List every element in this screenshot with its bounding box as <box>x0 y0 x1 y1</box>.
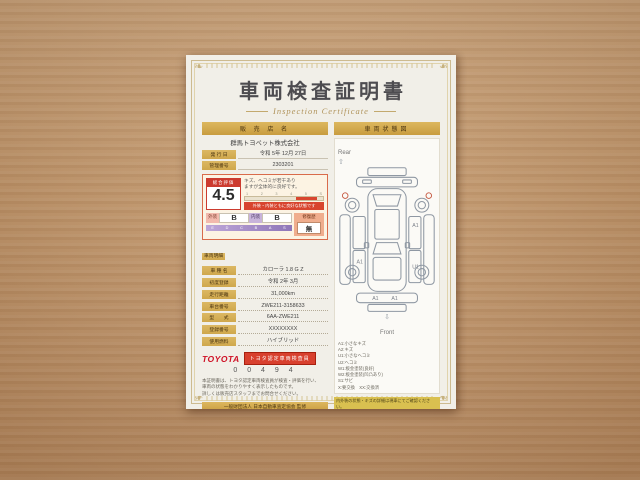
detail-row-registration-number: 登録番号 XXXXXXXX <box>202 325 328 334</box>
grade-scale-letter: D <box>226 226 230 230</box>
score-scale-marker <box>296 197 316 200</box>
inspector-row: TOYOTA トヨタ認定車両検査員 <box>202 352 328 365</box>
condition-legend: A1:小さなキズ A2:キズ U1:小さなヘコミ U2:ヘコミ W1:板金塗装(… <box>338 341 436 391</box>
front-label-row: ⇩ Front <box>338 314 436 339</box>
front-label: Front <box>380 330 394 336</box>
condition-mark: A1 <box>372 296 378 302</box>
first-registration-label: 初度登録 <box>202 278 236 287</box>
grade-scale-letter: E <box>211 226 215 230</box>
detail-row-first-registration: 初度登録 令和 2年 3月 <box>202 277 328 287</box>
issue-date-row: 発 行 日 令和 5年 12月 27日 <box>202 149 328 159</box>
grade-scale-letter: S <box>283 226 287 230</box>
issue-date-value: 令和 5年 12月 27日 <box>238 149 328 159</box>
car-condition-diagram: A1 A1 U1 A1 A1 <box>338 166 436 314</box>
control-number-label: 管理番号 <box>202 161 236 170</box>
control-number-value: 2303201 <box>238 162 328 170</box>
detail-row-fuel: 使用燃料 ハイブリッド <box>202 336 328 346</box>
rear-arrow-icon: ⇧ <box>338 159 436 166</box>
supervision-bar: 一般財団法人 日本自動車査定協会 監修 <box>202 402 328 409</box>
rear-label: Rear <box>338 150 351 156</box>
photo-of-certificate: { "title": { "main": "車両検査証明書", "sub": "… <box>0 0 640 480</box>
grade-scale-letter: A <box>269 226 273 230</box>
toyota-logo: TOYOTA <box>202 354 240 364</box>
overall-score-label: 総合評価 <box>207 179 240 187</box>
certificate-columns: 販 売 店 名 群馬トヨペット株式会社 発 行 日 令和 5年 12月 27日 … <box>202 122 440 409</box>
condition-mark: U1 <box>412 265 419 271</box>
overall-score-value: 4.5 <box>207 187 240 205</box>
score-scale-caption: 外装・内装ともに良好な状態です <box>244 202 324 210</box>
detail-row-model: 車 種 名 カローラ 1.8 G Z <box>202 265 328 275</box>
left-column: 販 売 店 名 群馬トヨペット株式会社 発 行 日 令和 5年 12月 27日 … <box>202 122 328 409</box>
model-label: 車 種 名 <box>202 266 236 275</box>
detail-row-mileage: 走行距離 31,000km <box>202 290 328 299</box>
score-scale-bar <box>244 196 324 201</box>
chassis-number-label: 車台番号 <box>202 302 236 311</box>
right-column: 車両状態図 Rear ⇧ <box>334 122 440 409</box>
grade-scale-letter: B <box>255 226 259 230</box>
grade-scale-letter: C <box>240 226 244 230</box>
certificate-subtitle: Inspection Certificate <box>202 106 440 116</box>
issue-date-label: 発 行 日 <box>202 150 236 159</box>
fuel-value: ハイブリッド <box>238 336 328 346</box>
registration-number-value: XXXXXXXX <box>238 326 328 334</box>
details-section-row: 車両明細 <box>202 244 328 262</box>
evaluation-comment-line2: ますが全体的に良好です。 <box>244 184 324 190</box>
first-registration-value: 令和 2年 3月 <box>238 277 328 287</box>
condition-diagram-panel: Rear ⇧ <box>334 138 440 394</box>
certificate-title: 車両検査証明書 <box>202 75 440 104</box>
front-arrow-icon: ⇩ <box>338 314 436 321</box>
exterior-grade-value: B <box>219 213 249 223</box>
model-code-label: 型 式 <box>202 313 236 322</box>
condition-mark: A1 <box>357 260 363 266</box>
condition-mark: A1 <box>412 223 418 229</box>
grade-scale-bar: E D C B A S <box>206 225 292 231</box>
seller-header-bar: 販 売 店 名 <box>202 122 328 135</box>
chassis-number-value: ZWE211-3158633 <box>238 303 328 311</box>
condition-diagram-header-bar: 車両状態図 <box>334 122 440 135</box>
subtitle-rule-left <box>246 111 268 112</box>
evaluation-top: 総合評価 4.5 キズ、ヘコミが若干あり ますが全体的に良好です。 1 2 3 … <box>206 178 324 210</box>
inspector-notes: 本証明書は、トヨタ認定車両検査員が検査・評価を行い、 車両の状態をわかりやすく表… <box>202 378 328 396</box>
evaluation-box: 総合評価 4.5 キズ、ヘコミが若干あり ますが全体的に良好です。 1 2 3 … <box>202 174 328 240</box>
dealer-name: 群馬トヨペット株式会社 <box>202 138 328 147</box>
condition-highlight-note: 内外装の状態・キズの詳細は現車にてご確認ください。 <box>334 397 440 409</box>
evaluation-comment-area: キズ、ヘコミが若干あり ますが全体的に良好です。 1 2 3 4 5 S <box>244 178 324 210</box>
subtitle-rule-right <box>374 111 396 112</box>
interior-grade-label: 内装 <box>249 213 262 223</box>
repair-history-label: 修復歴 <box>294 213 324 221</box>
grade-section: 外装 B 内装 B E D C B A S <box>206 213 324 236</box>
certificate-paper: ❧ ❧ ❧ ❧ 車両検査証明書 Inspection Certificate 販… <box>186 55 456 409</box>
mileage-label: 走行距離 <box>202 290 236 299</box>
details-section-label: 車両明細 <box>202 253 225 260</box>
repair-history-block: 修復歴 無 <box>294 213 324 236</box>
model-code-value: 6AA-ZWE211 <box>238 314 328 322</box>
interior-grade-value: B <box>262 213 292 223</box>
detail-row-model-code: 型 式 6AA-ZWE211 <box>202 313 328 322</box>
registration-number-label: 登録番号 <box>202 325 236 334</box>
certificate-content: 車両検査証明書 Inspection Certificate 販 売 店 名 群… <box>193 62 449 402</box>
inspector-number: 0 0 4 9 4 <box>202 367 328 374</box>
grade-row: 外装 B 内装 B <box>206 213 292 223</box>
overall-score-box: 総合評価 4.5 <box>206 178 241 210</box>
fuel-label: 使用燃料 <box>202 337 236 346</box>
condition-mark: A1 <box>391 296 397 302</box>
legend-line: X:要交換 XX:交換済 <box>338 385 436 391</box>
grade-left-area: 外装 B 内装 B E D C B A S <box>206 213 292 236</box>
repair-history-value: 無 <box>297 222 321 234</box>
certificate-subtitle-text: Inspection Certificate <box>273 106 369 116</box>
exterior-grade-label: 外装 <box>206 213 219 223</box>
inspector-note-line: 詳しくは販売店スタッフまでお問合せください。 <box>202 391 328 397</box>
detail-row-chassis-number: 車台番号 ZWE211-3158633 <box>202 302 328 311</box>
mileage-value: 31,000km <box>238 291 328 299</box>
model-value: カローラ 1.8 G Z <box>238 265 328 275</box>
control-number-row: 管理番号 2303201 <box>202 161 328 170</box>
certified-inspector-badge: トヨタ認定車両検査員 <box>244 352 316 365</box>
